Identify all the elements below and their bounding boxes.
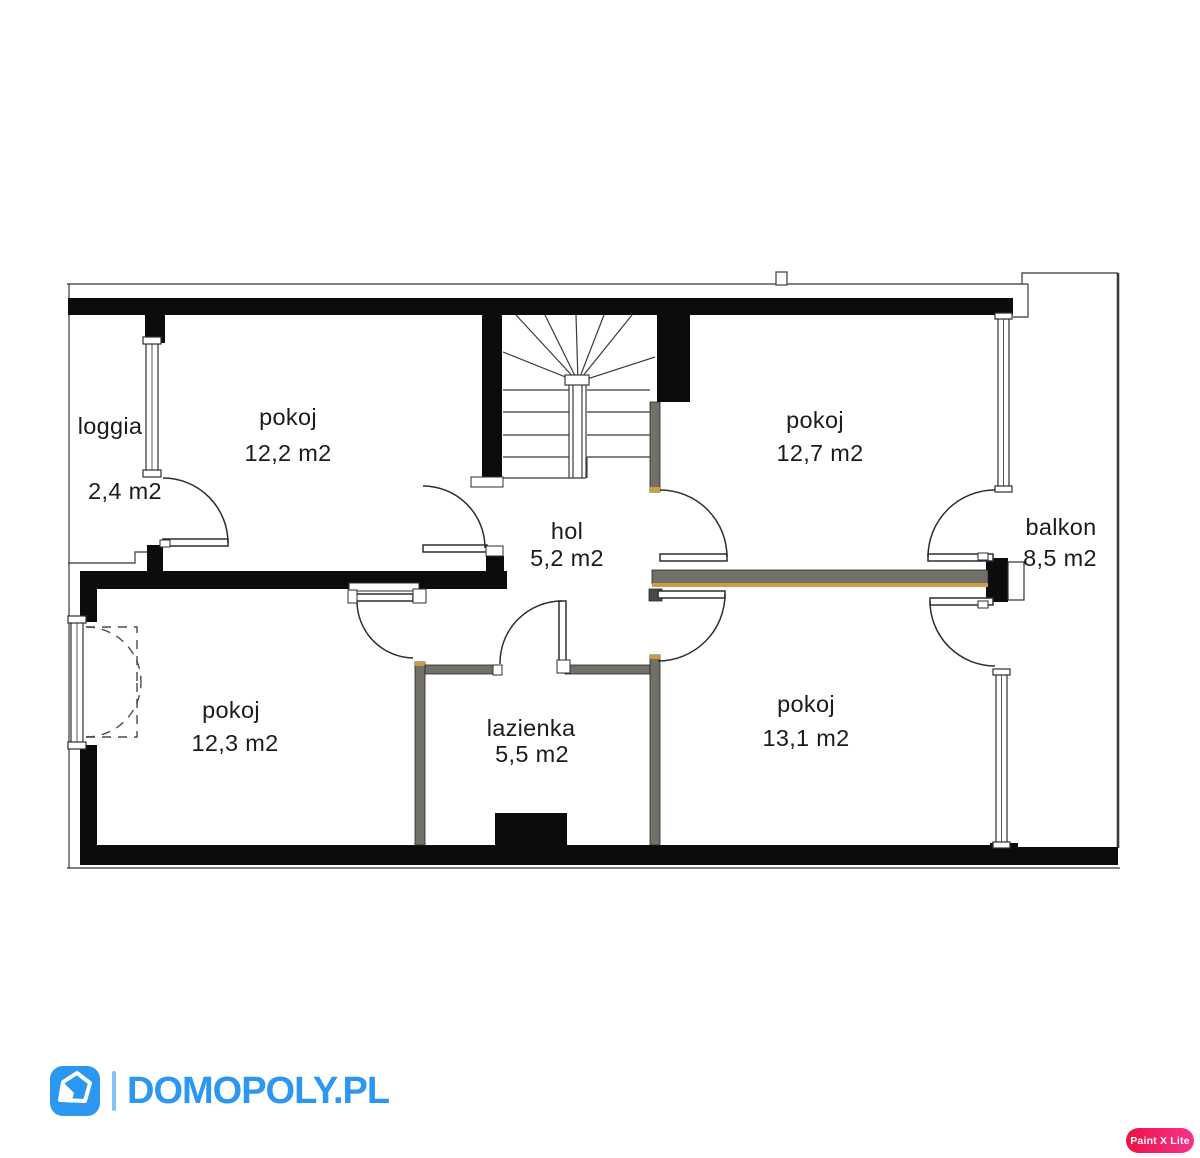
wall-balkon-bottom [1018,847,1118,865]
room-label-hol: hol [551,518,583,544]
wall-lazienka-left [415,662,425,845]
door-pokoj-12-2 [423,486,487,552]
wall-loggia-door-stub [147,545,163,571]
wall-lazienka-top-left [425,665,498,674]
door-pokoj-12-7 [660,490,727,561]
wall-middle [82,571,507,589]
wall-lazienka-right [650,655,660,845]
stair-newel [565,375,589,385]
room-area-loggia: 2,4 m2 [88,478,162,504]
wall-balkon-pier [986,558,1008,602]
door-balkon-upper [928,490,995,561]
room-area-hol: 5,2 m2 [530,545,604,571]
wall-stair-left [482,315,502,477]
logo-separator [112,1071,116,1111]
logo-text: DOMOPOLY.PL [127,1070,389,1113]
window-swing-dashed [86,627,141,737]
room-area-lazienka: 5,5 m2 [495,741,569,767]
room-area-balkon: 8,5 m2 [1023,545,1097,571]
room-label-loggia: loggia [78,413,143,439]
floorplan-page: { "plan": { "rooms": [ {"id": "loggia", … [0,0,1200,1158]
paint-x-lite-badge: Paint X Lite [1126,1128,1194,1153]
room-label-pokoj-13-1: pokoj [777,691,835,717]
wall-left-upper [80,571,97,622]
room-label-pokoj-12-2: pokoj [259,404,317,430]
chimney-duct [495,813,567,847]
door-pokoj-12-3 [349,583,419,658]
wall-top [68,298,1013,315]
door-loggia [163,478,228,546]
room-area-pokoj-12-2: 12,2 m2 [244,440,331,466]
floor-plan: loggia 2,4 m2 pokoj 12,2 m2 pokoj 12,7 m… [0,0,1200,1158]
wall-stair-right [657,315,690,402]
wall-bottom [82,845,1008,865]
window-loggia [143,337,161,477]
door-lazienka [500,601,566,665]
staircase [503,315,655,478]
wall-partition-mid [652,570,988,584]
window-right-upper [995,313,1012,492]
room-area-pokoj-13-1: 13,1 m2 [762,725,849,751]
balkon-threshold [1008,562,1024,600]
wall-lazienka-top-right [565,665,650,674]
room-label-pokoj-12-7: pokoj [786,407,844,433]
domopoly-logo: DOMOPOLY.PL [50,1066,389,1116]
room-area-pokoj-12-3: 12,3 m2 [191,730,278,756]
room-label-lazienka: lazienka [487,715,576,741]
room-label-pokoj-12-3: pokoj [202,697,260,723]
window-right-lower [993,669,1010,848]
room-area-pokoj-12-7: 12,7 m2 [776,440,863,466]
watermark-label: Paint X Lite [1130,1135,1190,1147]
window-left [68,616,86,749]
wall-middle-stub [486,556,504,589]
house-icon [50,1066,100,1116]
door-pokoj-13-1 [658,591,725,661]
room-label-balkon: balkon [1025,514,1096,540]
